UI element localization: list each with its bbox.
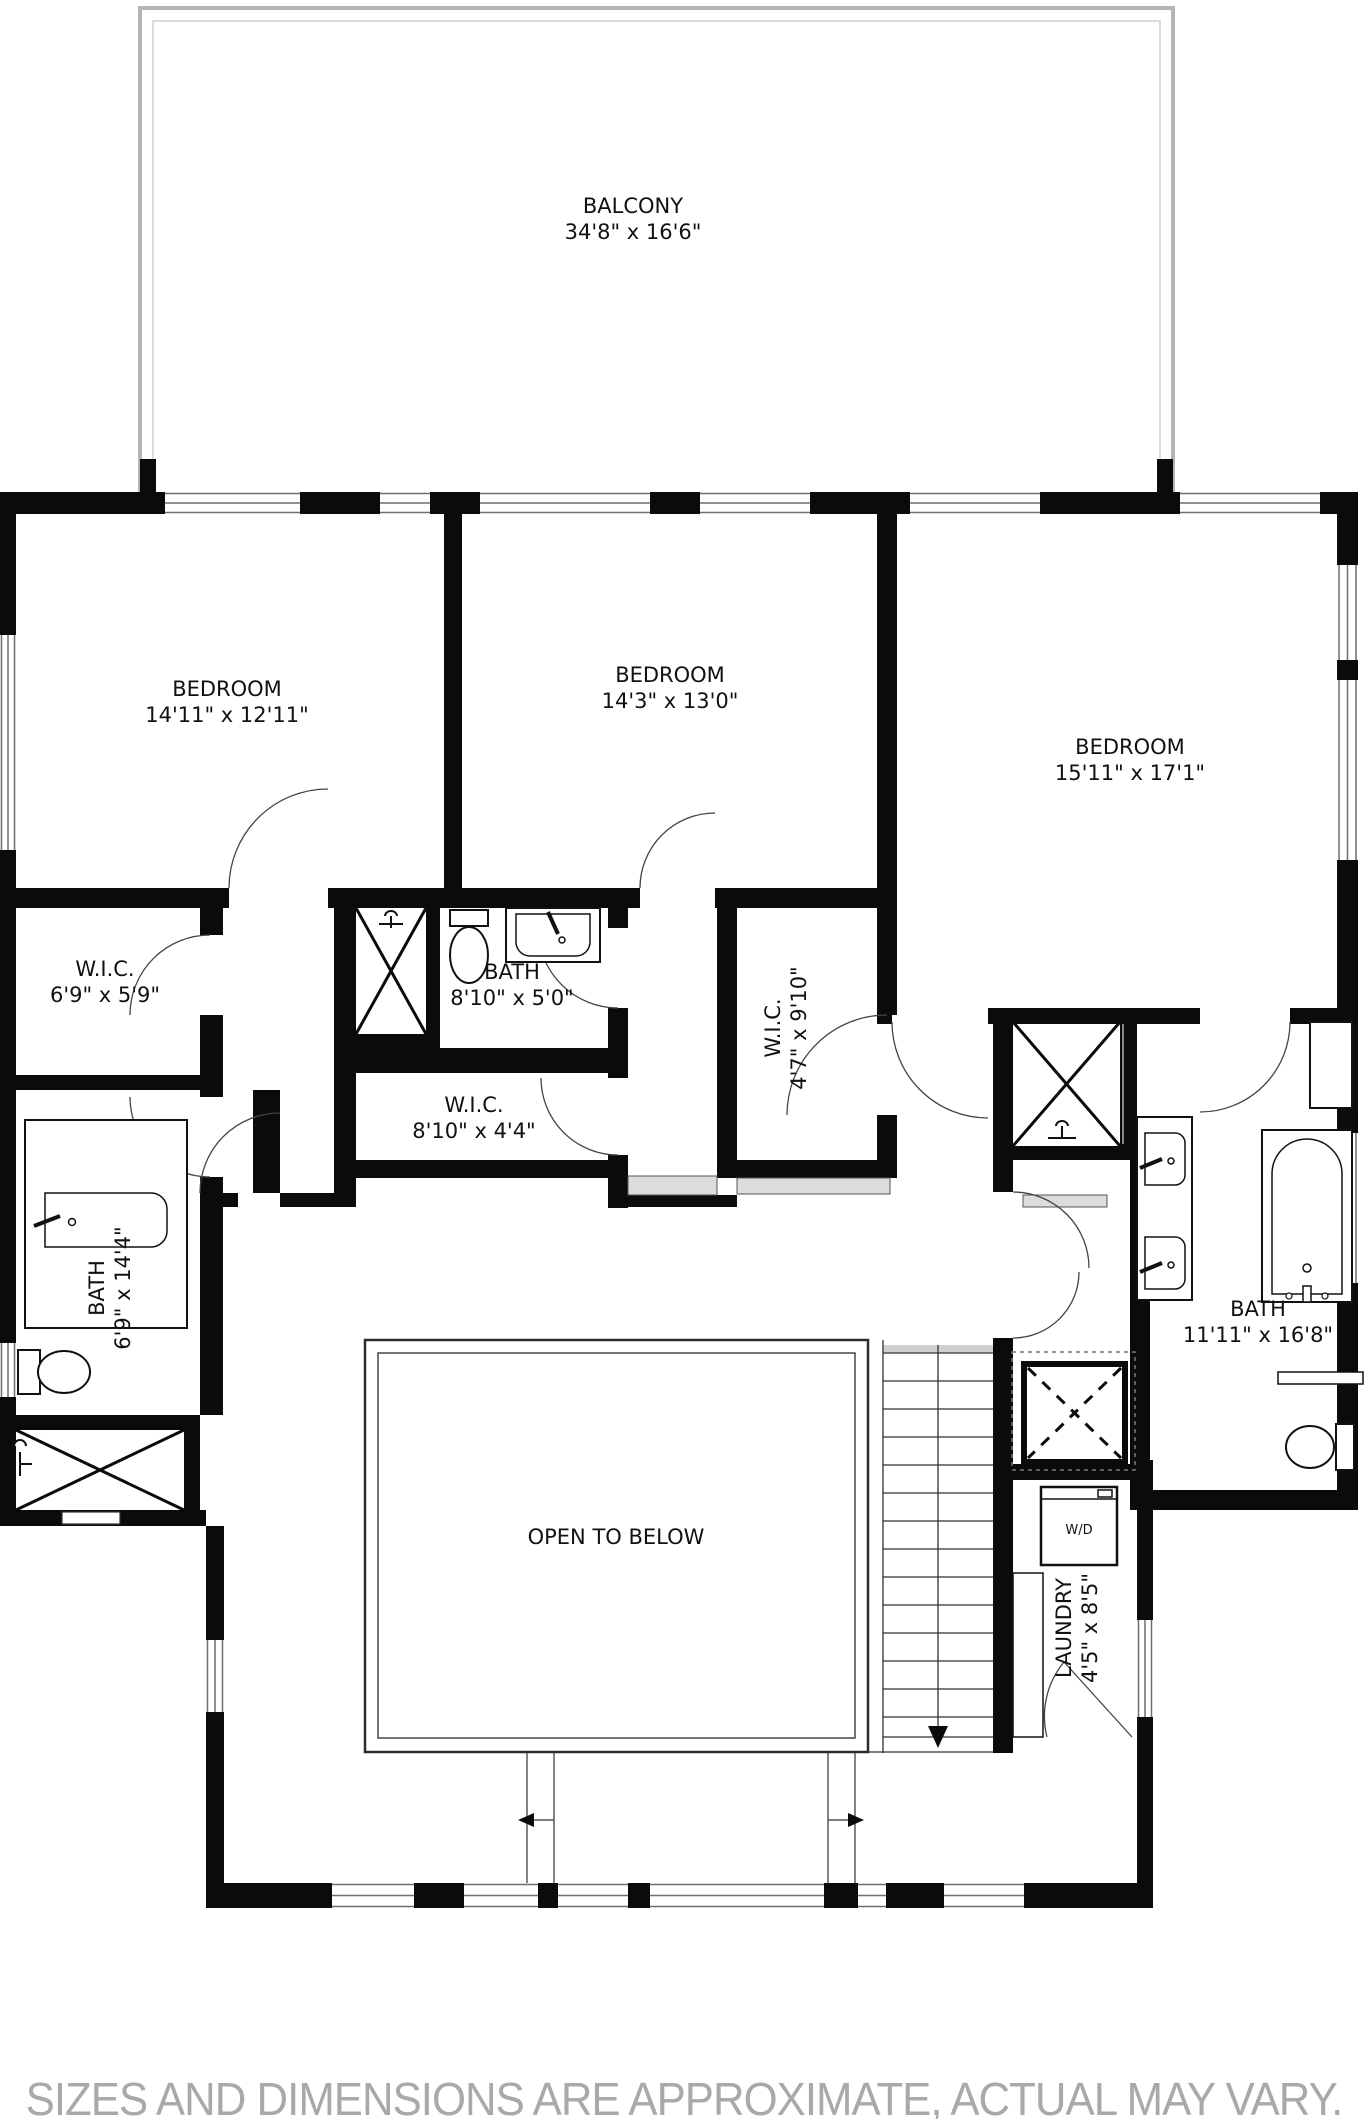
- door-arc-icon: [1013, 1272, 1079, 1338]
- room-dimensions: 15'11" x 17'1": [1055, 760, 1205, 786]
- room-name: W.I.C.: [50, 956, 160, 982]
- room-name: LAUNDRY: [1051, 1573, 1077, 1683]
- room-name: BEDROOM: [145, 676, 309, 702]
- toilet-icon: [18, 1350, 90, 1394]
- room-dimensions: 6'9" x 14'4": [110, 1226, 136, 1349]
- floor-plan-drawing: [0, 0, 1368, 2119]
- room-label-bath-left: BATH6'9" x 14'4": [84, 1226, 136, 1349]
- room-name: BATH: [1183, 1296, 1333, 1322]
- room-name: BATH: [84, 1226, 110, 1349]
- room-name: BALCONY: [565, 193, 702, 219]
- room-dimensions: 8'10" x 4'4": [412, 1118, 535, 1144]
- door-arc-icon: [229, 789, 328, 888]
- stairs-icon: [868, 1340, 993, 1753]
- slider-markers: [518, 1753, 864, 1883]
- room-dimensions: 4'7" x 9'10": [786, 966, 812, 1089]
- room-name: BATH: [450, 959, 573, 985]
- room-dimensions: 6'9" x 5'9": [50, 982, 160, 1008]
- shower-icon: [14, 1430, 184, 1524]
- room-label-bath-center: BATH8'10" x 5'0": [450, 959, 573, 1011]
- cabinet-icon: [1013, 1573, 1043, 1737]
- room-name: BEDROOM: [602, 662, 739, 688]
- room-name: W.I.C.: [412, 1092, 535, 1118]
- window-icon: [206, 1640, 224, 1712]
- cabinet-icon: [1310, 1022, 1352, 1108]
- room-label-open-to-below: OPEN TO BELOW: [528, 1524, 705, 1550]
- room-dimensions: 8'10" x 5'0": [450, 985, 573, 1011]
- balcony-walls: [140, 8, 1173, 492]
- room-dimensions: 14'11" x 12'11": [145, 702, 309, 728]
- room-label-laundry: LAUNDRY4'5" x 8'5": [1051, 1573, 1103, 1683]
- room-dimensions: 11'11" x 16'8": [1183, 1322, 1333, 1348]
- room-label-bath-right: BATH11'11" x 16'8": [1183, 1296, 1333, 1348]
- room-name: W/D: [1065, 1524, 1092, 1538]
- room-dimensions: 34'8" x 16'6": [565, 219, 702, 245]
- room-label-wic-left: W.I.C.6'9" x 5'9": [50, 956, 160, 1008]
- room-label-bedroom-right: BEDROOM15'11" x 17'1": [1055, 734, 1205, 786]
- room-name: W.I.C.: [760, 966, 786, 1089]
- shower-icon: [356, 908, 440, 1048]
- bathtub-icon: [1262, 1130, 1352, 1302]
- room-name: BEDROOM: [1055, 734, 1205, 760]
- sink-icon: [506, 908, 600, 962]
- window-icon: [1137, 1620, 1153, 1717]
- room-label-washer-dryer: W/D: [1065, 1524, 1092, 1538]
- shower-icon: [1013, 1022, 1123, 1146]
- room-label-wic-vertical: W.I.C.4'7" x 9'10": [760, 966, 812, 1089]
- door-arcs: [130, 789, 1290, 1737]
- door-arc-icon: [1200, 1022, 1290, 1112]
- toilet-icon: [1286, 1424, 1354, 1470]
- door-arc-icon: [640, 813, 715, 888]
- room-label-balcony: BALCONY34'8" x 16'6": [565, 193, 702, 245]
- room-dimensions: 4'5" x 8'5": [1077, 1573, 1103, 1683]
- sink-icon: [1137, 1117, 1192, 1300]
- door-arc-icon: [541, 1078, 618, 1155]
- floor-plan: BALCONY34'8" x 16'6"BEDROOM14'11" x 12'1…: [0, 0, 1368, 2119]
- disclaimer-text: SIZES AND DIMENSIONS ARE APPROXIMATE, AC…: [26, 2072, 1343, 2119]
- room-label-bedroom-left: BEDROOM14'11" x 12'11": [145, 676, 309, 728]
- room-dimensions: 14'3" x 13'0": [602, 688, 739, 714]
- room-label-wic-center: W.I.C.8'10" x 4'4": [412, 1092, 535, 1144]
- elevator-icon: [1012, 1352, 1135, 1470]
- room-label-bedroom-center: BEDROOM14'3" x 13'0": [602, 662, 739, 714]
- room-name: OPEN TO BELOW: [528, 1524, 705, 1550]
- door-arc-icon: [892, 1022, 988, 1118]
- towel-bar-icon: [1278, 1372, 1363, 1384]
